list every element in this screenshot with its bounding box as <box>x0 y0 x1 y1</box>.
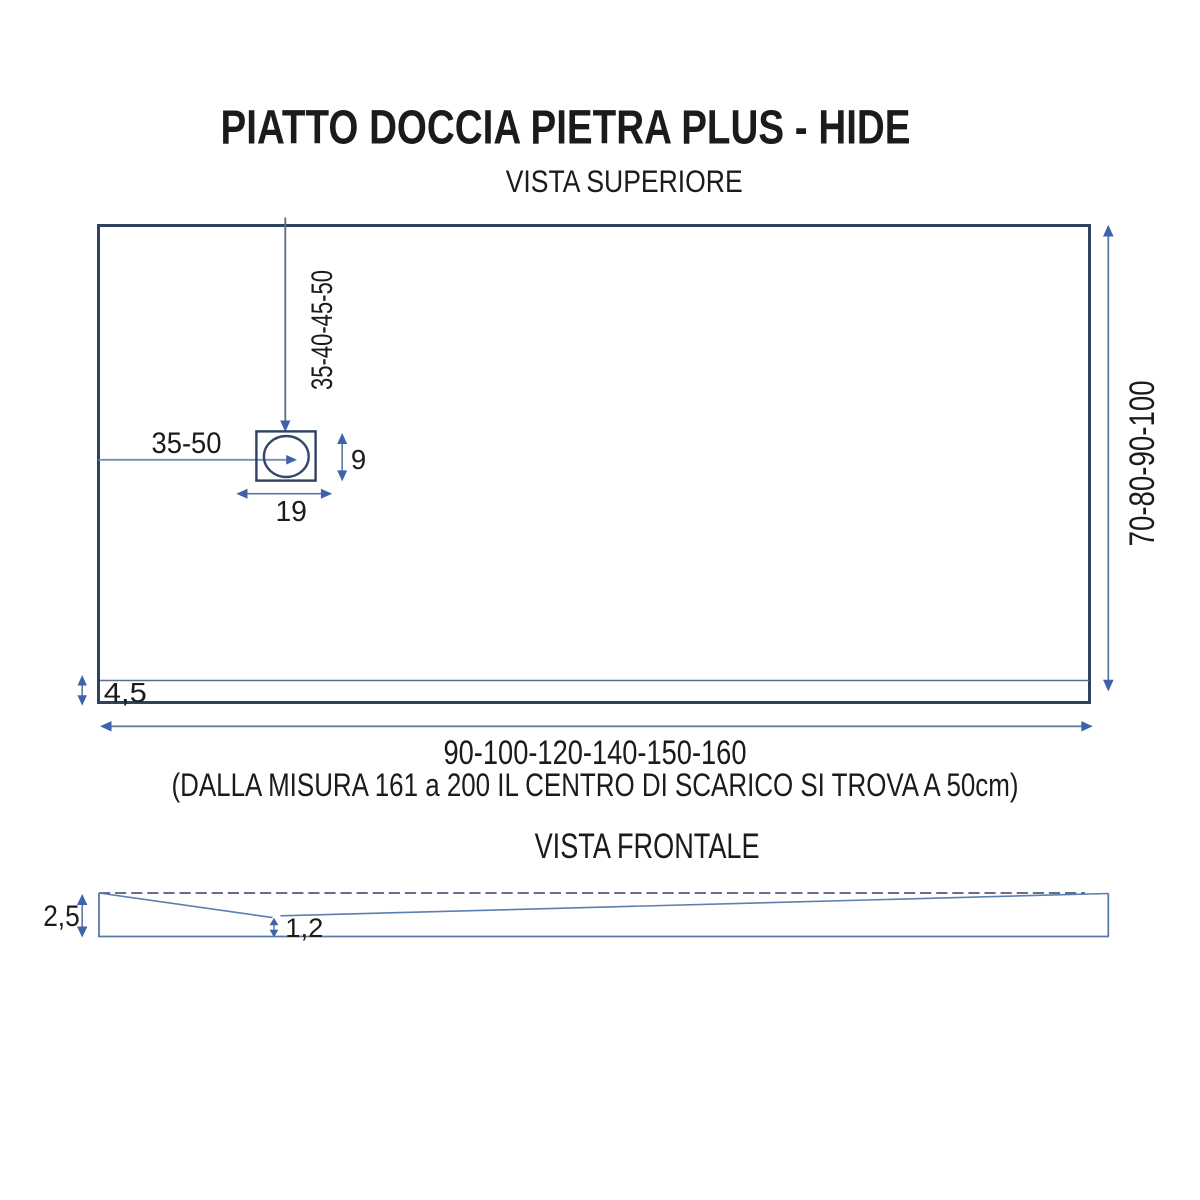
svg-text:PIATTO DOCCIA PIETRA PLUS - HI: PIATTO DOCCIA PIETRA PLUS - HIDE <box>221 102 911 155</box>
svg-text:1,2: 1,2 <box>285 913 323 943</box>
svg-text:70-80-90-100: 70-80-90-100 <box>1123 380 1162 546</box>
svg-text:4,5: 4,5 <box>104 677 147 708</box>
svg-text:(DALLA MISURA 161 a 200 IL CEN: (DALLA MISURA 161 a 200 IL CENTRO DI SCA… <box>172 767 1019 803</box>
svg-text:9: 9 <box>351 444 366 475</box>
svg-text:2,5: 2,5 <box>43 900 79 933</box>
svg-text:VISTA SUPERIORE: VISTA SUPERIORE <box>506 163 743 199</box>
svg-text:35-50: 35-50 <box>152 427 222 460</box>
svg-text:VISTA FRONTALE: VISTA FRONTALE <box>535 827 760 866</box>
svg-text:35-40-45-50: 35-40-45-50 <box>306 270 339 390</box>
svg-text:19: 19 <box>275 496 307 528</box>
